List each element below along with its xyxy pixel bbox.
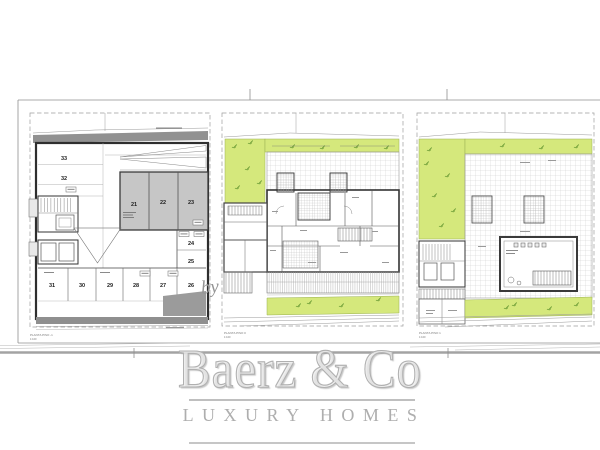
parking-space-26: 26 — [188, 283, 194, 289]
road-lines — [224, 315, 399, 326]
parking-space-31: 31 — [49, 283, 55, 289]
watermark-tagline: LUXURY HOMES — [0, 405, 600, 426]
bathroom-tiles — [283, 241, 318, 268]
watermark-divider-bottom — [189, 442, 415, 444]
plan-ground-floor: PLANTA PISO 0 1:100 — [222, 113, 403, 339]
plan3-title: PLANTA PISO 1 — [419, 331, 441, 335]
retaining-wall — [33, 131, 208, 143]
drawing-sheet: 33 32 21 22 23 — [0, 0, 600, 450]
staircase — [338, 228, 372, 241]
stair-tower-left — [277, 173, 294, 192]
plan1-title: PLANTA PISO -1 — [30, 333, 53, 337]
skylight-left — [472, 196, 492, 223]
parking-space-23: 23 — [188, 200, 194, 206]
garden-strip — [465, 139, 592, 154]
watermark-by: by — [200, 276, 220, 299]
parking-space-22: 22 — [160, 200, 166, 206]
parking-space-25: 25 — [188, 259, 194, 265]
annex — [224, 203, 267, 293]
parking-space-29: 29 — [107, 283, 113, 289]
garden-strip — [265, 139, 399, 152]
parking-space-21: 21 — [131, 202, 137, 208]
parking-space-24: 24 — [188, 241, 195, 247]
parking-space-27: 27 — [160, 283, 166, 289]
parking-space-30: 30 — [79, 283, 85, 289]
roof-structure — [500, 237, 577, 291]
skylight-right — [524, 196, 544, 223]
plan-roof: PLANTA PISO 1 1:100 — [417, 113, 594, 339]
garden-block — [225, 139, 265, 203]
parking-space-32: 32 — [61, 176, 67, 182]
bottom-wall — [36, 317, 208, 324]
parking-space-33: 33 — [61, 156, 67, 162]
stair-core — [419, 241, 465, 324]
elevator-core — [298, 193, 330, 220]
plan2-title: PLANTA PISO 0 — [224, 331, 246, 335]
porch-deck — [267, 272, 399, 293]
plan-basement: 33 32 21 22 23 — [29, 113, 210, 341]
watermark-brand: Baerz & Co — [0, 340, 600, 398]
garden-block — [419, 139, 465, 239]
parking-space-28: 28 — [133, 283, 139, 289]
garden-lower-strip — [465, 297, 592, 318]
stair-tower-right — [330, 173, 347, 192]
watermark-divider-top — [189, 399, 415, 401]
